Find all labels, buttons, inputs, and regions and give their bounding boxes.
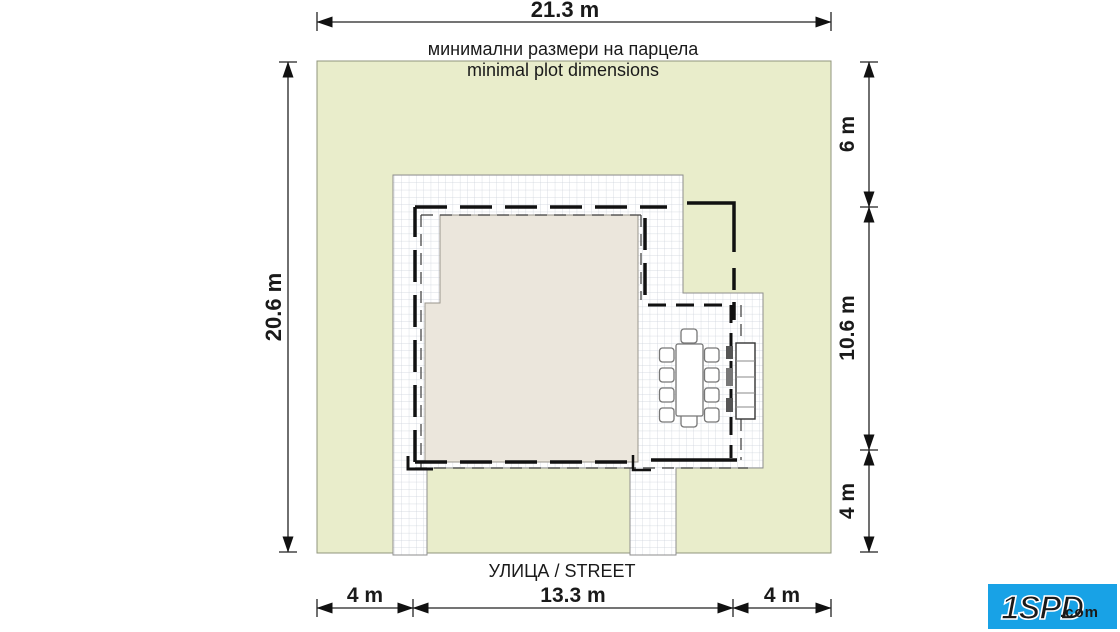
chair-icon	[705, 368, 720, 382]
street-label: УЛИЦА / STREET	[489, 561, 636, 581]
logo-suffix-text: .com	[1060, 604, 1099, 621]
chair-icon	[705, 348, 720, 362]
dimension-top-label: 21.3 m	[531, 0, 600, 22]
dimension-bottom-center-label: 13.3 m	[540, 584, 605, 607]
chair-icon	[705, 408, 720, 422]
house-footprint	[425, 215, 638, 462]
chair-icon	[660, 388, 675, 402]
dimension-right-top-label: 6 m	[836, 116, 859, 152]
chair-icon	[660, 348, 675, 362]
title-english: minimal plot dimensions	[467, 60, 659, 80]
spd-logo[interactable]: 1SPD .com	[988, 584, 1117, 629]
site-plan-drawing: 21.3 m минимални размери на парцела mini…	[0, 0, 1120, 632]
dimension-right-bottom-label: 4 m	[836, 483, 859, 519]
site-plan-canvas: 21.3 m минимални размери на парцела mini…	[0, 0, 1120, 632]
dimension-bottom-right-label: 4 m	[764, 584, 800, 607]
chair-icon	[660, 368, 675, 382]
chair-icon	[705, 388, 720, 402]
chair-icon	[660, 408, 675, 422]
dimension-bottom-left-label: 4 m	[347, 584, 383, 607]
dimension-right-middle-label: 10.6 m	[836, 295, 859, 360]
terrace-door-steps	[726, 343, 755, 419]
title-bulgarian: минимални размери на парцела	[428, 39, 700, 59]
table-icon	[676, 344, 703, 416]
chair-icon	[681, 329, 697, 343]
dimension-left-label: 20.6 m	[261, 273, 286, 342]
